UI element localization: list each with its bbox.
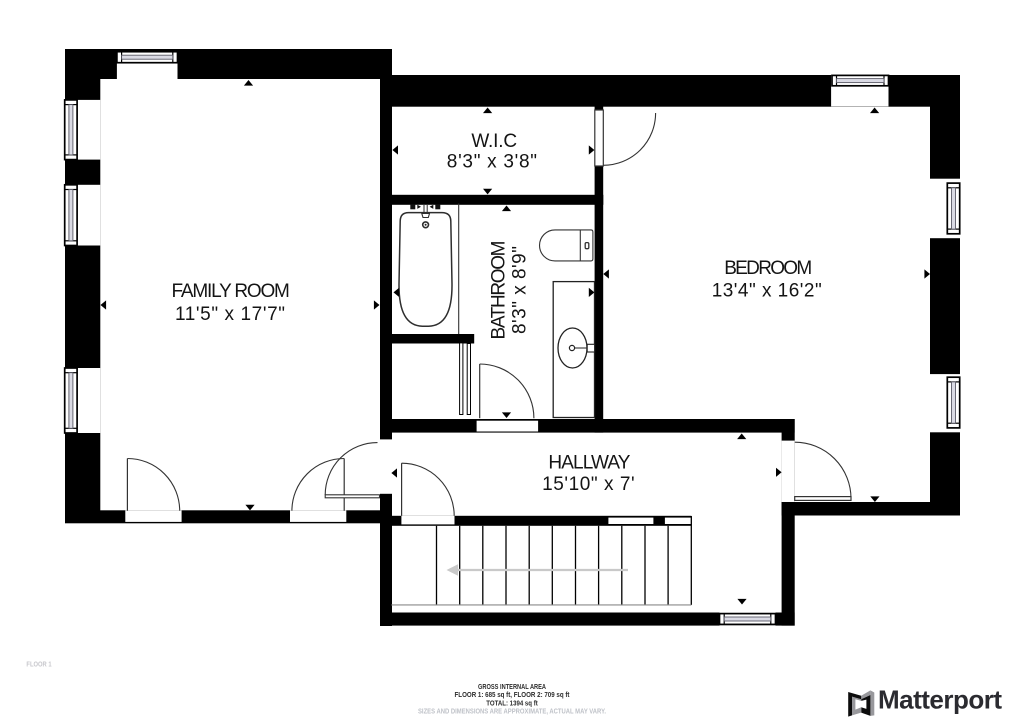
svg-text:SIZES AND DIMENSIONS ARE APPRO: SIZES AND DIMENSIONS ARE APPROXIMATE, AC… [418,707,606,716]
svg-text:15'10" x 7': 15'10" x 7' [542,474,635,495]
svg-text:11'5" x 17'7": 11'5" x 17'7" [175,304,285,325]
svg-text:W.I.C: W.I.C [471,131,517,152]
svg-text:Matterport: Matterport [878,685,1002,715]
svg-text:8'3" x 8'9": 8'3" x 8'9" [509,246,530,334]
svg-text:BEDROOM: BEDROOM [724,258,812,279]
svg-text:13'4" x 16'2": 13'4" x 16'2" [712,281,822,302]
svg-text:HALLWAY: HALLWAY [548,453,630,474]
svg-text:FLOOR 1: FLOOR 1 [26,660,51,669]
svg-text:BATHROOM: BATHROOM [489,241,510,340]
svg-text:FAMILY ROOM: FAMILY ROOM [172,281,290,302]
svg-text:8'3" x 3'8": 8'3" x 3'8" [447,152,537,173]
